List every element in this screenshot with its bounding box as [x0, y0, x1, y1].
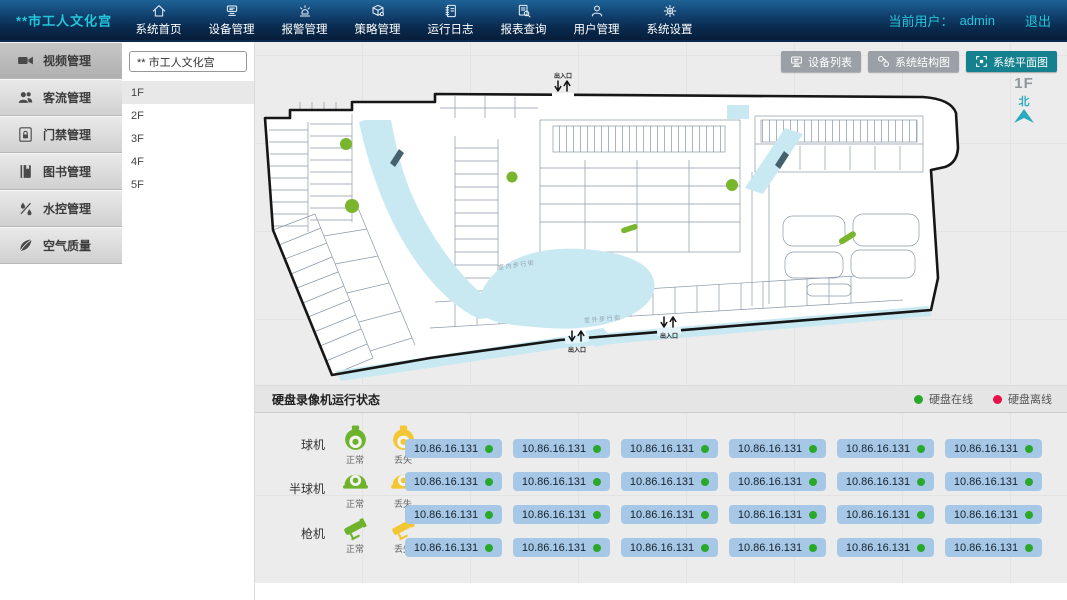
nav-item-label: 设备管理: [209, 21, 255, 37]
logout-button[interactable]: 退出: [1025, 11, 1051, 30]
dvr-device-chip[interactable]: 10.86.16.131: [837, 472, 934, 491]
device-ip: 10.86.16.131: [630, 542, 694, 554]
floor-item[interactable]: 1F: [122, 81, 254, 104]
entrance-label: 出入口: [554, 72, 572, 80]
floor-item[interactable]: 5F: [122, 173, 254, 196]
building-selector[interactable]: ** 市工人文化宫: [129, 51, 247, 72]
device-ip: 10.86.16.131: [630, 443, 694, 455]
device-ip: 10.86.16.131: [954, 443, 1018, 455]
nav-menu: 系统首页 设备管理 报警管理 策略管理 运行日志 报表查询 用户管理 系统设置: [122, 0, 706, 40]
current-user-label: 当前用户：: [889, 11, 954, 30]
dvr-device-chip[interactable]: 10.86.16.131: [621, 538, 718, 557]
entrance-north: 出入口: [554, 72, 572, 91]
nav-item-label: 用户管理: [574, 21, 620, 37]
dvr-device-chip[interactable]: 10.86.16.131: [945, 505, 1042, 524]
floor-item-label: 4F: [131, 156, 144, 168]
people-icon: [17, 89, 34, 106]
dvr-device-chip[interactable]: 10.86.16.131: [405, 439, 502, 458]
dvr-device-chip[interactable]: 10.86.16.131: [513, 538, 610, 557]
nav-user-area: 当前用户： admin 退出: [889, 0, 1051, 40]
dvr-device-chip[interactable]: 10.86.16.131: [513, 472, 610, 491]
system-structure-button[interactable]: 系统结构图: [868, 51, 959, 72]
device-ip: 10.86.16.131: [414, 542, 478, 554]
sidebar-item-label: 图书管理: [43, 163, 91, 180]
online-status-dot: [701, 544, 709, 552]
map-compass: 1F 北: [1005, 75, 1043, 128]
nav-item-label: 报表查询: [501, 21, 547, 37]
user-icon: [589, 3, 605, 19]
device-ip: 10.86.16.131: [738, 509, 802, 521]
online-status-dot: [1025, 544, 1033, 552]
camera-type-label: 球机: [279, 436, 325, 453]
bullet-camera-normal-icon: [342, 514, 369, 541]
dvr-device-chip[interactable]: 10.86.16.131: [513, 439, 610, 458]
device-ip: 10.86.16.131: [522, 542, 586, 554]
dvr-device-chip[interactable]: 10.86.16.131: [945, 538, 1042, 557]
strategy-icon: [370, 3, 386, 19]
device-ip: 10.86.16.131: [738, 542, 802, 554]
sidebar-item-video-management[interactable]: 视频管理: [0, 42, 122, 79]
floor-panel: ** 市工人文化宫 1F 2F 3F 4F 5F: [122, 42, 255, 600]
nav-item-label: 运行日志: [428, 21, 474, 37]
online-status-dot: [593, 511, 601, 519]
dvr-device-chip[interactable]: 10.86.16.131: [621, 505, 718, 524]
floor-item[interactable]: 2F: [122, 104, 254, 127]
legend-offline: 硬盘离线: [993, 391, 1052, 407]
device-ip: 10.86.16.131: [414, 443, 478, 455]
button-label: 系统结构图: [895, 54, 950, 70]
sidebar-item-label: 水控管理: [43, 200, 91, 217]
nav-item-run-logs[interactable]: 运行日志: [414, 0, 487, 40]
online-status-dot: [917, 478, 925, 486]
leaf-icon: [17, 237, 34, 254]
device-ip: 10.86.16.131: [414, 509, 478, 521]
dvr-device-chip[interactable]: 10.86.16.131: [513, 505, 610, 524]
online-status-dot: [1025, 511, 1033, 519]
device-ip: 10.86.16.131: [738, 476, 802, 488]
top-nav: **市工人文化宫 系统首页 设备管理 报警管理 策略管理 运行日志 报表查询 用…: [0, 0, 1067, 42]
dvr-device-chip[interactable]: 10.86.16.131: [837, 505, 934, 524]
device-ip: 10.86.16.131: [522, 443, 586, 455]
nav-item-label: 策略管理: [355, 21, 401, 37]
dvr-device-chip[interactable]: 10.86.16.131: [621, 472, 718, 491]
camera-state-normal: 正常: [337, 425, 373, 466]
device-ip: 10.86.16.131: [846, 443, 910, 455]
sidebar-item-passenger-flow[interactable]: 客流管理: [0, 79, 122, 116]
online-status-dot: [809, 544, 817, 552]
dvr-device-chip[interactable]: 10.86.16.131: [945, 439, 1042, 458]
device-ip: 10.86.16.131: [954, 509, 1018, 521]
camera-type-label: 半球机: [279, 480, 325, 497]
dvr-device-chip[interactable]: 10.86.16.131: [945, 472, 1042, 491]
online-status-dot: [593, 478, 601, 486]
offline-dot: [993, 395, 1002, 404]
device-ip: 10.86.16.131: [846, 542, 910, 554]
nav-item-label: 系统设置: [647, 21, 693, 37]
camera-row-bullet: 枪机 正常 丢失: [279, 514, 421, 555]
entrance-label: 出入口: [660, 332, 678, 340]
state-label: 正常: [346, 453, 364, 466]
sidebar-item-label: 门禁管理: [43, 126, 91, 143]
dvr-device-chip[interactable]: 10.86.16.131: [729, 538, 826, 557]
online-status-dot: [917, 445, 925, 453]
app-title: **市工人文化宫: [16, 11, 112, 30]
online-status-dot: [485, 445, 493, 453]
online-status-dot: [701, 478, 709, 486]
nav-item-device-management[interactable]: 设备管理: [195, 0, 268, 40]
online-status-dot: [593, 445, 601, 453]
structure-diagram-icon: [877, 55, 890, 68]
entrance-label: 出入口: [568, 346, 586, 354]
state-label: 正常: [346, 542, 364, 555]
system-floor-plan-button[interactable]: 系统平面图: [966, 51, 1057, 72]
video-camera-icon: [17, 52, 34, 69]
dvr-device-chip[interactable]: 10.86.16.131: [405, 505, 502, 524]
dvr-device-chip[interactable]: 10.86.16.131: [837, 439, 934, 458]
floor-list: 1F 2F 3F 4F 5F: [122, 81, 254, 196]
status-legend: 硬盘在线 硬盘离线: [914, 391, 1052, 407]
alarm-icon: [297, 3, 313, 19]
dvr-device-grid: 10.86.16.131 10.86.16.131 10.86.16.131 1…: [405, 439, 1042, 557]
legend-online-label: 硬盘在线: [929, 391, 973, 407]
device-ip: 10.86.16.131: [846, 476, 910, 488]
online-status-dot: [593, 544, 601, 552]
online-status-dot: [917, 544, 925, 552]
camera-state-normal: 正常: [337, 514, 373, 555]
dvr-device-chip[interactable]: 10.86.16.131: [621, 439, 718, 458]
report-search-icon: [516, 3, 532, 19]
device-ip: 10.86.16.131: [630, 476, 694, 488]
device-ip: 10.86.16.131: [630, 509, 694, 521]
online-status-dot: [809, 478, 817, 486]
device-ip: 10.86.16.131: [738, 443, 802, 455]
north-arrow-icon: [1014, 109, 1034, 123]
current-user-name: admin: [960, 13, 995, 28]
sidebar: 视频管理 客流管理 门禁管理 图书管理 水控管理 空气质量: [0, 42, 122, 600]
online-status-dot: [701, 445, 709, 453]
online-status-dot: [1025, 478, 1033, 486]
dvr-device-chip[interactable]: 10.86.16.131: [837, 538, 934, 557]
ball-camera-normal-icon: [342, 425, 369, 452]
door-lock-icon: [17, 126, 34, 143]
floor-label: 1F: [1005, 75, 1043, 92]
legend-offline-label: 硬盘离线: [1008, 391, 1052, 407]
online-status-dot: [485, 478, 493, 486]
dvr-device-chip[interactable]: 10.86.16.131: [729, 472, 826, 491]
home-icon: [151, 3, 167, 19]
device-list-button[interactable]: 设备列表: [781, 51, 861, 72]
online-status-dot: [809, 511, 817, 519]
north-label: 北: [1005, 93, 1043, 109]
floor-item-label: 1F: [131, 87, 144, 99]
legend-online: 硬盘在线: [914, 391, 973, 407]
sidebar-item-label: 视频管理: [43, 52, 91, 69]
floor-item[interactable]: 3F: [122, 127, 254, 150]
device-ip: 10.86.16.131: [954, 542, 1018, 554]
nav-item-label: 系统首页: [136, 21, 182, 37]
camera-state-normal: 正常: [337, 469, 373, 510]
floor-plan-icon: [975, 55, 988, 68]
device-list-icon: [790, 55, 803, 68]
floor-item-label: 5F: [131, 179, 144, 191]
device-ip: 10.86.16.131: [954, 476, 1018, 488]
device-ip: 10.86.16.131: [414, 476, 478, 488]
floor-item[interactable]: 4F: [122, 150, 254, 173]
device-ip: 10.86.16.131: [522, 476, 586, 488]
button-label: 设备列表: [808, 54, 852, 70]
dvr-device-chip[interactable]: 10.86.16.131: [729, 505, 826, 524]
dvr-device-chip[interactable]: 10.86.16.131: [729, 439, 826, 458]
nav-item-report-query[interactable]: 报表查询: [487, 0, 560, 40]
floor-item-label: 2F: [131, 110, 144, 122]
dvr-device-chip[interactable]: 10.86.16.131: [405, 472, 502, 491]
nav-item-alarm-management[interactable]: 报警管理: [268, 0, 341, 40]
sidebar-item-water-control[interactable]: 水控管理: [0, 190, 122, 227]
map-view-toolbar: 设备列表 系统结构图 系统平面图: [781, 51, 1057, 72]
online-dot: [914, 395, 923, 404]
nav-item-user-management[interactable]: 用户管理: [560, 0, 633, 40]
floor-item-label: 3F: [131, 133, 144, 145]
online-status-dot: [917, 511, 925, 519]
main-content: 设备列表 系统结构图 系统平面图 1F 北: [255, 42, 1067, 583]
devices-icon: [224, 3, 240, 19]
state-label: 正常: [346, 497, 364, 510]
nav-item-strategy-management[interactable]: 策略管理: [341, 0, 414, 40]
dvr-device-chip[interactable]: 10.86.16.131: [405, 538, 502, 557]
book-icon: [17, 163, 34, 180]
settings-icon: [662, 3, 678, 19]
camera-row-dome-ptz: 球机 正常 丢失: [279, 425, 421, 466]
floor-plan-map[interactable]: 室内步行街 室外步行街 出入口 出入口 出入口: [255, 60, 1067, 390]
log-icon: [443, 3, 459, 19]
sidebar-item-library-management[interactable]: 图书管理: [0, 153, 122, 190]
device-ip: 10.86.16.131: [846, 509, 910, 521]
dvr-status-panel: 硬盘录像机运行状态 硬盘在线 硬盘离线 球机 正常: [255, 385, 1067, 583]
dvr-status-header: 硬盘录像机运行状态 硬盘在线 硬盘离线: [255, 385, 1067, 413]
camera-row-half-dome: 半球机 正常 丢失: [279, 469, 421, 510]
nav-item-system-settings[interactable]: 系统设置: [633, 0, 706, 40]
dvr-status-title: 硬盘录像机运行状态: [272, 391, 380, 408]
dome-camera-normal-icon: [342, 469, 369, 496]
camera-type-label: 枪机: [279, 525, 325, 542]
online-status-dot: [701, 511, 709, 519]
sidebar-item-label: 空气质量: [43, 237, 91, 254]
sidebar-item-access-control[interactable]: 门禁管理: [0, 116, 122, 153]
online-status-dot: [485, 544, 493, 552]
online-status-dot: [1025, 445, 1033, 453]
water-percent-icon: [17, 200, 34, 217]
online-status-dot: [809, 445, 817, 453]
device-ip: 10.86.16.131: [522, 509, 586, 521]
dvr-status-body: 球机 正常 丢失 半球机 正常 丢失: [255, 413, 1067, 582]
sidebar-item-label: 客流管理: [43, 89, 91, 106]
button-label: 系统平面图: [993, 54, 1048, 70]
nav-item-label: 报警管理: [282, 21, 328, 37]
sidebar-item-air-quality[interactable]: 空气质量: [0, 227, 122, 264]
online-status-dot: [485, 511, 493, 519]
nav-item-system-home[interactable]: 系统首页: [122, 0, 195, 40]
